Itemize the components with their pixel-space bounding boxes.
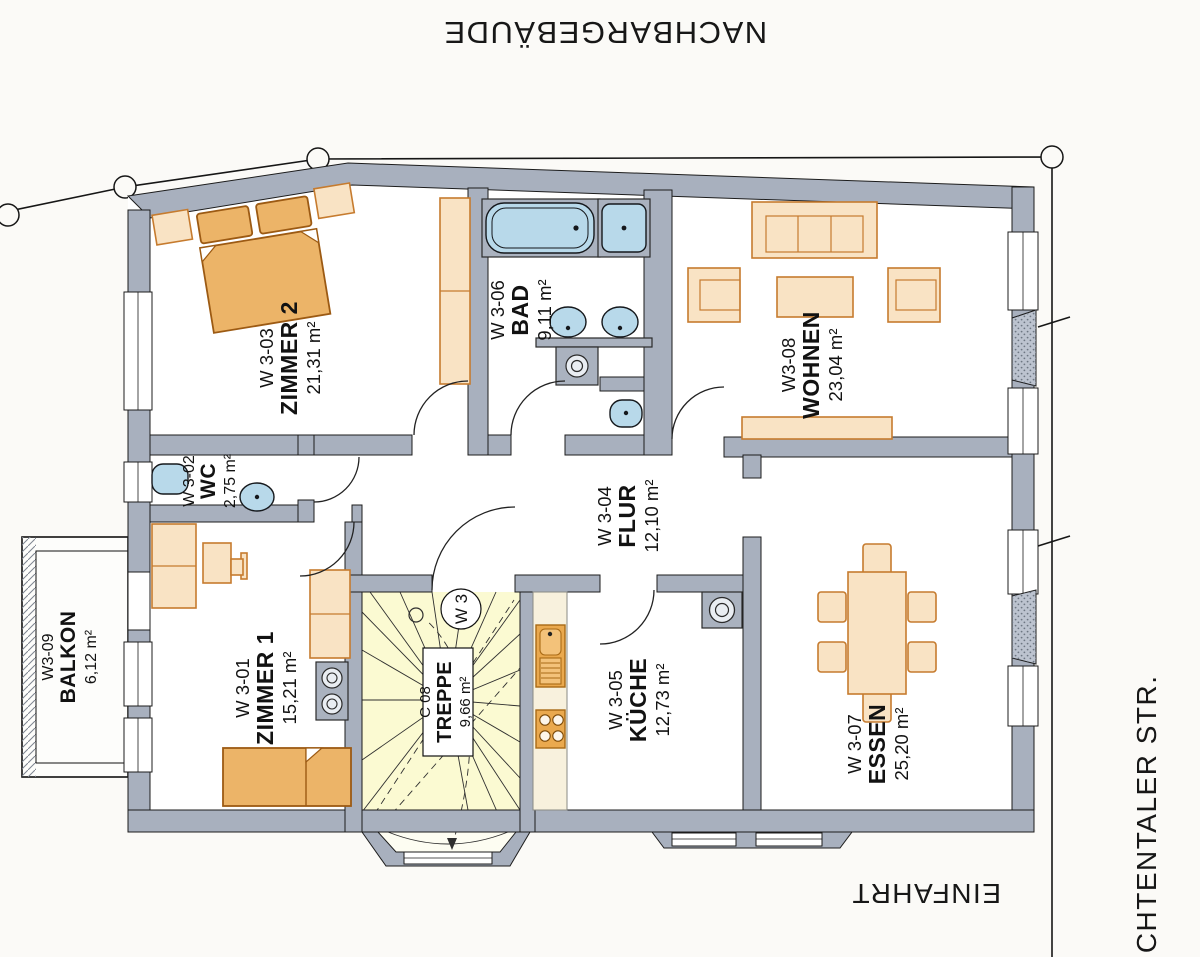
svg-text:WC: WC [197,463,220,499]
svg-text:W 3-01: W 3-01 [232,658,253,718]
svg-text:C 08: C 08 [417,686,434,718]
svg-text:LICHTENTALER STR.: LICHTENTALER STR. [1131,674,1162,957]
washbasin [550,307,586,337]
survey-point-icon [114,176,136,198]
svg-text:W 3-05: W 3-05 [605,670,626,730]
svg-text:ZIMMER 1: ZIMMER 1 [252,631,278,745]
svg-text:9,11 m²: 9,11 m² [534,279,555,340]
sofa [752,202,877,258]
svg-text:W 3-04: W 3-04 [594,486,615,546]
svg-text:NACHBARGEBÄUDE: NACHBARGEBÄUDE [443,15,767,50]
chair [818,592,846,622]
svg-text:FLUR: FLUR [614,484,640,547]
room-label-flur: W 3-04 FLUR 12,10 m² [594,479,662,552]
svg-text:KÜCHE: KÜCHE [625,658,651,742]
nightstand [152,209,192,244]
wall-bottom [128,810,1034,832]
chair [908,592,936,622]
svg-text:ZIMMER 2: ZIMMER 2 [276,301,302,415]
room-label-bad: W 3-06 BAD 9,11 m² [487,279,555,340]
dining-table [848,572,906,694]
survey-point-icon [1041,146,1063,168]
desk [203,543,231,583]
balcony-door-opening [128,572,150,630]
svg-text:BALKON: BALKON [57,611,80,704]
floorplan-drawing: W 3 W 3-03 ZIMMER 2 21,31 m² W 3-06 BAD … [0,0,1200,957]
svg-text:EINFAHRT: EINFAHRT [851,878,1001,909]
coffee-table [777,277,853,317]
sideboard [742,417,892,439]
svg-text:21,31 m²: 21,31 m² [303,321,324,394]
driveway-label: EINFAHRT [851,878,1001,909]
svg-text:12,73 m²: 12,73 m² [652,663,673,736]
svg-text:W 3-02: W 3-02 [181,455,198,507]
svg-text:W 3-07: W 3-07 [844,714,865,774]
svg-text:25,20 m²: 25,20 m² [891,707,912,780]
chair [818,642,846,672]
single-bed [223,748,351,806]
street-label: LICHTENTALER STR. [1131,674,1162,957]
svg-text:W 3-03: W 3-03 [256,328,277,388]
svg-text:6,12 m²: 6,12 m² [83,629,100,684]
survey-point-icon [0,204,19,226]
svg-text:W 3: W 3 [452,594,471,624]
nightstand [314,183,354,218]
armchair [688,268,740,322]
svg-text:W 3-06: W 3-06 [487,280,508,340]
chair [908,642,936,672]
room-label-kueche: W 3-05 KÜCHE 12,73 m² [605,658,673,742]
svg-text:9,66 m²: 9,66 m² [457,677,474,728]
neighbor-building-label: NACHBARGEBÄUDE [443,15,767,50]
svg-text:2,75 m²: 2,75 m² [222,453,239,508]
svg-text:ESSEN: ESSEN [864,704,890,784]
unit-badge: W 3 [452,594,471,624]
floorplan-page: W 3 W 3-03 ZIMMER 2 21,31 m² W 3-06 BAD … [0,0,1200,957]
svg-text:23,04 m²: 23,04 m² [825,328,846,401]
washbasin [602,307,638,337]
svg-text:TREPPE: TREPPE [434,661,456,743]
double-bed [200,229,330,333]
svg-text:WOHNEN: WOHNEN [798,311,824,419]
svg-text:W3-08: W3-08 [778,338,799,393]
svg-text:15,21 m²: 15,21 m² [279,651,300,724]
svg-text:W3-09: W3-09 [40,633,57,680]
svg-text:BAD: BAD [507,284,533,335]
room-label-essen: W 3-07 ESSEN 25,20 m² [844,704,912,784]
svg-text:12,10 m²: 12,10 m² [641,479,662,552]
